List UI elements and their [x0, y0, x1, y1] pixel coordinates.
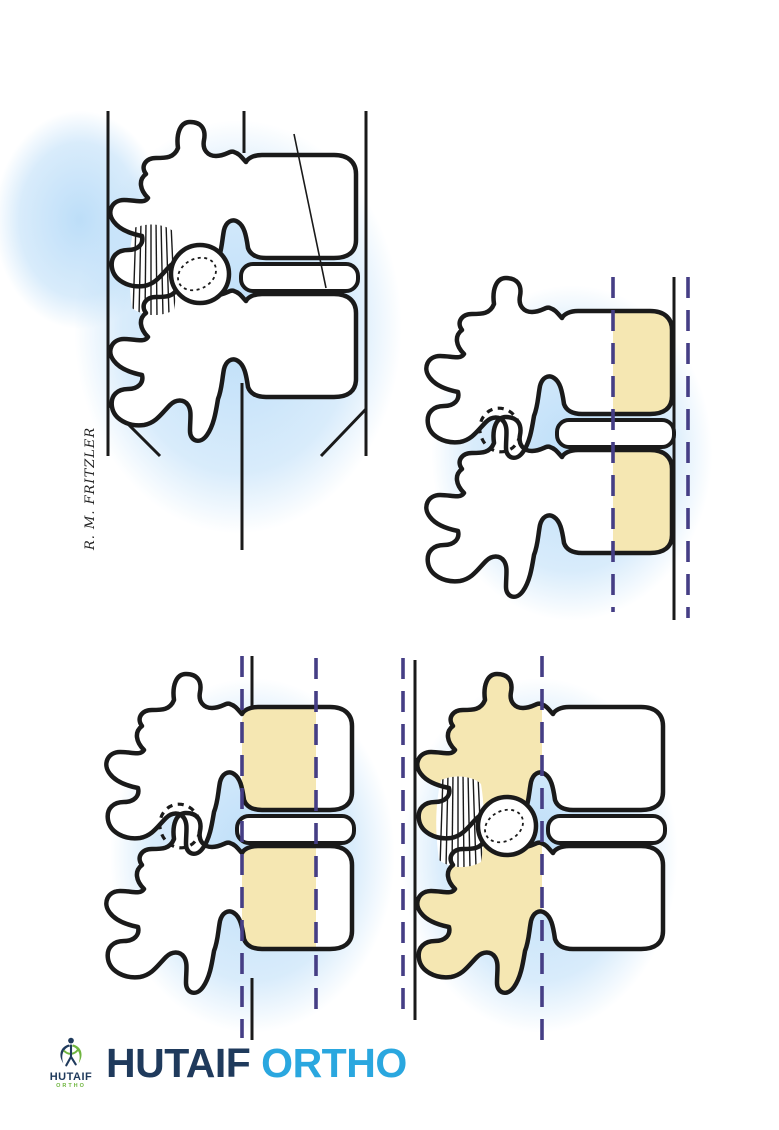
- logo-small-subtitle: ORTHO: [38, 1083, 104, 1090]
- pedicle-circle: [171, 245, 229, 303]
- panel-intact-vertebrae: R. M. FRITZLER: [78, 98, 402, 568]
- panel-posterior-elements-highlight: [388, 648, 692, 1048]
- wordmark: HUTAIF ORTHO: [106, 1040, 407, 1087]
- panel-posterior-wedge-highlight: [98, 648, 402, 1048]
- disc: [237, 816, 354, 843]
- lower-body-highlight: [242, 846, 316, 949]
- medical-illustration-page: R. M. FRITZLER: [0, 0, 779, 1130]
- logo-small-title: HUTAIF: [38, 1072, 104, 1083]
- panel-anterior-highlight: [420, 258, 720, 626]
- disc: [557, 420, 674, 447]
- vertebra-pair: [405, 662, 665, 1012]
- stippled-disc: [241, 264, 358, 291]
- lower-body-highlight: [613, 450, 672, 553]
- vertebra-pair: [426, 278, 674, 597]
- logo-block: HUTAIF ORTHO: [38, 1034, 104, 1090]
- artist-signature: R. M. FRITZLER: [83, 427, 98, 551]
- wordmark-accent: ORTHO: [261, 1040, 407, 1086]
- upper-body-highlight: [613, 311, 672, 414]
- hutaif-ortho-logo-icon: [52, 1034, 90, 1072]
- reference-lines: [403, 658, 415, 1020]
- upper-body-highlight: [242, 707, 316, 810]
- wordmark-main: HUTAIF: [106, 1040, 250, 1086]
- vertebra-pair: [110, 122, 358, 441]
- pedicle-circle: [478, 797, 536, 855]
- disc: [548, 816, 665, 843]
